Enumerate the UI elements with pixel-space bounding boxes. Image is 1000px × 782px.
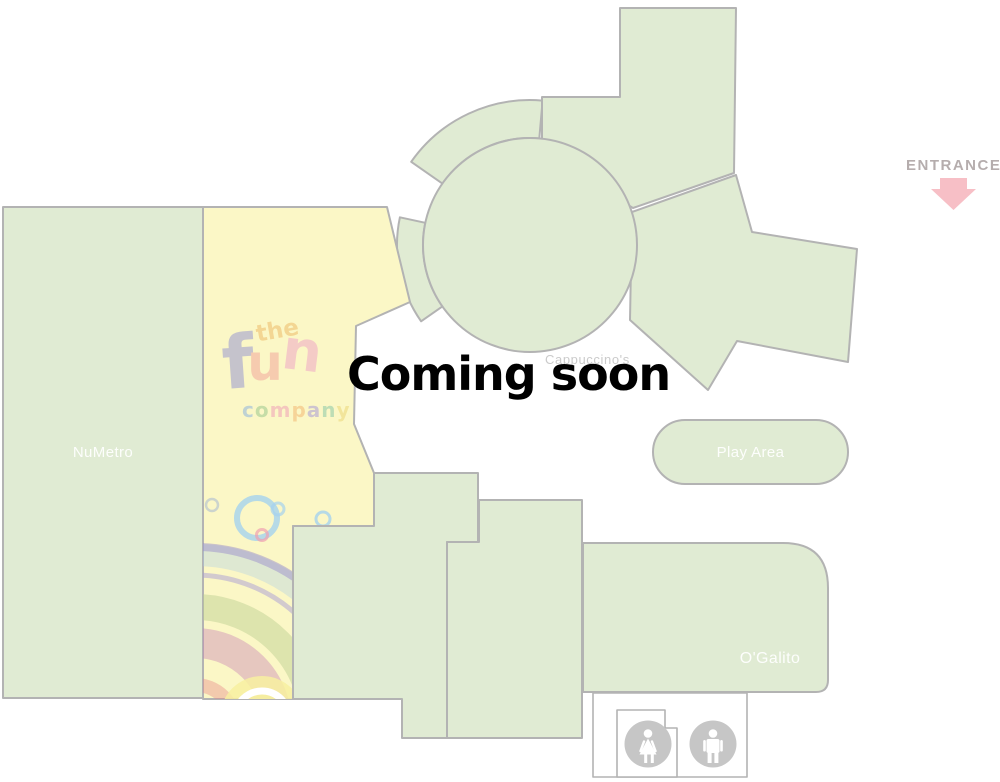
coming-soon-text: Coming soon — [347, 347, 670, 401]
men-restroom-icon[interactable] — [690, 721, 737, 768]
ogalito-area[interactable] — [583, 543, 828, 692]
fun-company-logo: the fun company — [220, 318, 370, 428]
mall-map-canvas: Play Area NuMetro O'Galito Cappuccino's … — [0, 0, 1000, 782]
logo-word-company: company — [242, 398, 351, 422]
rotunda-circle-shape[interactable] — [423, 138, 637, 352]
entrance-label: ENTRANCE — [906, 157, 1000, 174]
restrooms-block — [593, 693, 747, 777]
play-area-label: Play Area — [717, 444, 785, 461]
play-area[interactable]: Play Area — [652, 419, 849, 485]
numetro-area[interactable] — [3, 207, 203, 698]
logo-word-fun: fun — [222, 320, 320, 406]
women-restroom-icon[interactable] — [625, 721, 672, 768]
entrance-arrow-icon — [931, 178, 976, 210]
